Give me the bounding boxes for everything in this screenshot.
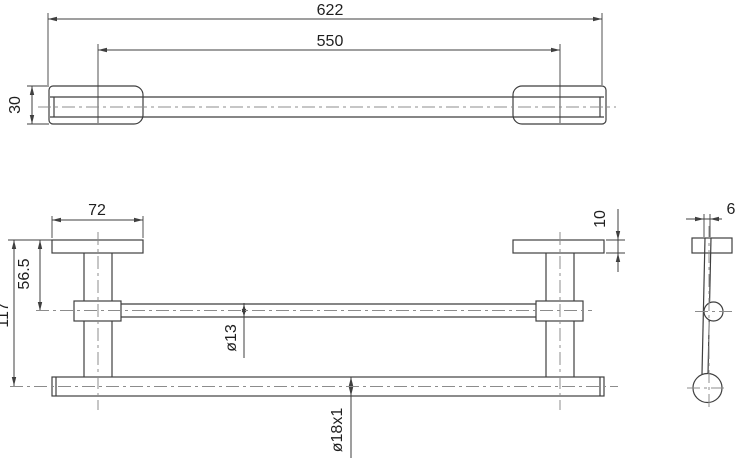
top-view: 622 550 30 — [7, 2, 606, 124]
right-mount-plate-plan — [513, 86, 606, 124]
dim-mount-spacing: 550 — [98, 33, 560, 123]
dim-arm-thickness-label: 6 — [727, 201, 736, 218]
side-view: 6 — [686, 201, 736, 403]
dim-flange-thickness-label: 10 — [592, 210, 609, 228]
dim-arm-thickness: 6 — [686, 201, 736, 237]
dim-rail-diameter: ø13 — [223, 303, 246, 358]
right-flange-front — [513, 240, 604, 253]
dim-depth-label: 30 — [7, 96, 24, 114]
front-view: 72 10 56.5 117 — [0, 202, 625, 458]
dim-rail-diameter-label: ø13 — [223, 324, 240, 352]
dim-overall-length-label: 622 — [317, 2, 344, 19]
technical-drawing: 622 550 30 — [0, 0, 751, 459]
dim-flange-width-label: 72 — [88, 202, 106, 219]
dim-rail-offset: 56.5 — [8, 240, 52, 311]
flange-side — [692, 238, 732, 253]
dim-rail-offset-label: 56.5 — [16, 258, 33, 289]
dim-depth: 30 — [7, 86, 49, 124]
centerlines — [10, 107, 733, 410]
dim-bar-tube-label: ø18x1 — [329, 408, 346, 453]
dim-overall-height-label: 117 — [0, 302, 12, 328]
left-mount-plate-plan — [49, 86, 143, 124]
dim-overall-height: 117 — [0, 240, 16, 386]
dim-mount-spacing-label: 550 — [317, 33, 344, 50]
